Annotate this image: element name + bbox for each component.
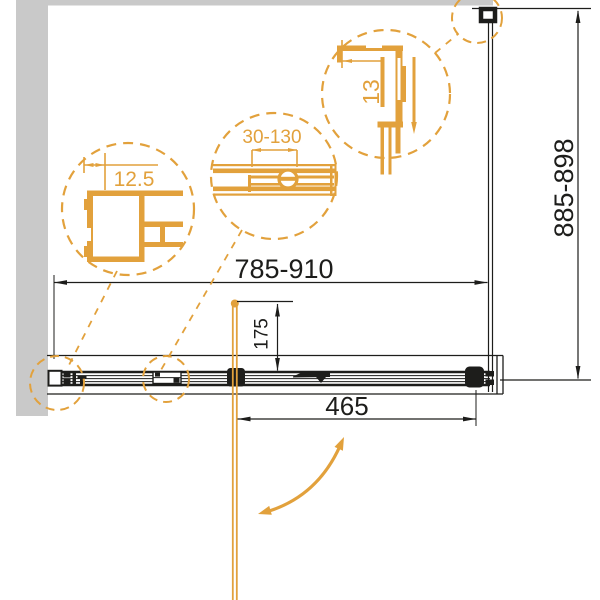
detail-1-dimension: 12.5 (84, 153, 158, 191)
detail-wall-profile-gap-label: 12.5 (114, 168, 155, 191)
wall-top (48, 0, 493, 6)
corner-roller-assembly (465, 367, 494, 388)
adjustment-profile-section (213, 164, 337, 196)
shower-door-drawing: 785-910 885-898 175 465 (0, 0, 600, 600)
dimension-door-opening: 465 (238, 390, 477, 426)
detail-bubble-adjustment: 30-130 (211, 113, 337, 239)
wall-left (16, 0, 48, 416)
detail-2-dimension: 30-130 (242, 127, 301, 167)
door-plan-view (47, 356, 503, 395)
door-swing-arrow-icon (258, 437, 344, 515)
side-panel-elevation (481, 9, 495, 392)
dimension-handle-offset: 175 (237, 302, 293, 372)
technical-drawing-page: 785-910 885-898 175 465 (0, 0, 600, 600)
slide-direction-arrow-icon (411, 57, 417, 134)
dimension-width-label: 785-910 (234, 254, 333, 284)
leader-line-3 (435, 34, 458, 53)
detail-top-rail-depth-label: 13 (358, 79, 384, 105)
leader-line-1 (68, 271, 117, 367)
dimension-height: 885-898 (472, 9, 591, 381)
dimension-door-opening-label: 465 (325, 391, 368, 421)
sliding-rail (60, 372, 490, 385)
wall-profile-cross-section (84, 191, 183, 263)
top-wall-bracket (481, 9, 495, 21)
dimension-handle-offset-label: 175 (252, 318, 273, 350)
adjustment-screw-slot (279, 177, 297, 181)
detail-bubble-top-rail: 13 (322, 30, 450, 175)
door-open-position (231, 300, 344, 600)
top-rail-cross-section (337, 44, 406, 175)
dimension-height-label: 885-898 (549, 138, 579, 237)
detail-adjustment-range-label: 30-130 (242, 127, 301, 148)
leader-line-2 (161, 230, 242, 370)
detail-bubble-wall-profile: 12.5 (62, 143, 194, 275)
detail-bubble-1-circle (62, 143, 194, 275)
glass-clamp-plan (153, 372, 181, 384)
